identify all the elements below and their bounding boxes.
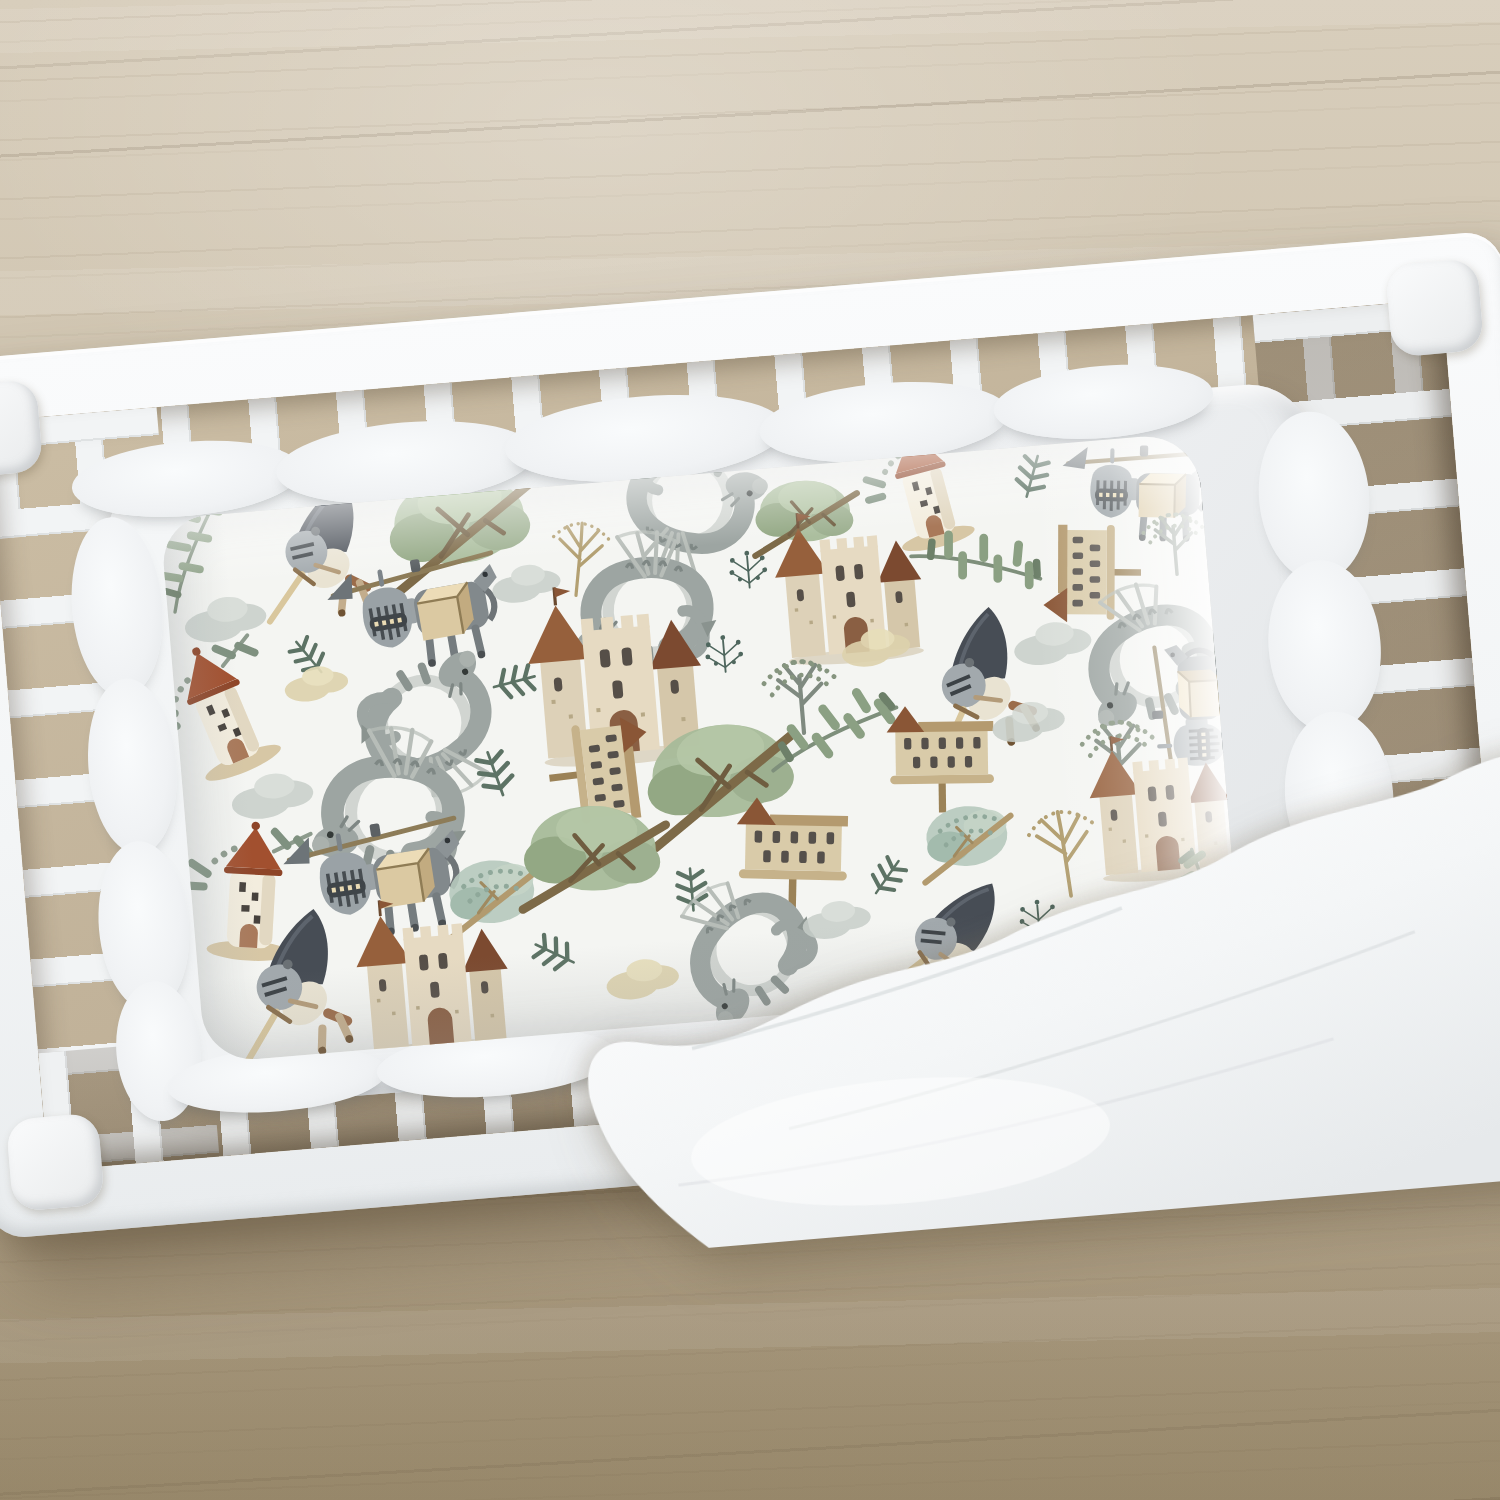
- crib-corner-post: [1385, 258, 1484, 357]
- product-photo-scene: [0, 0, 1500, 1500]
- blanket: [546, 650, 1500, 1258]
- crib-corner-post: [6, 1113, 105, 1212]
- crib: [0, 230, 1500, 1240]
